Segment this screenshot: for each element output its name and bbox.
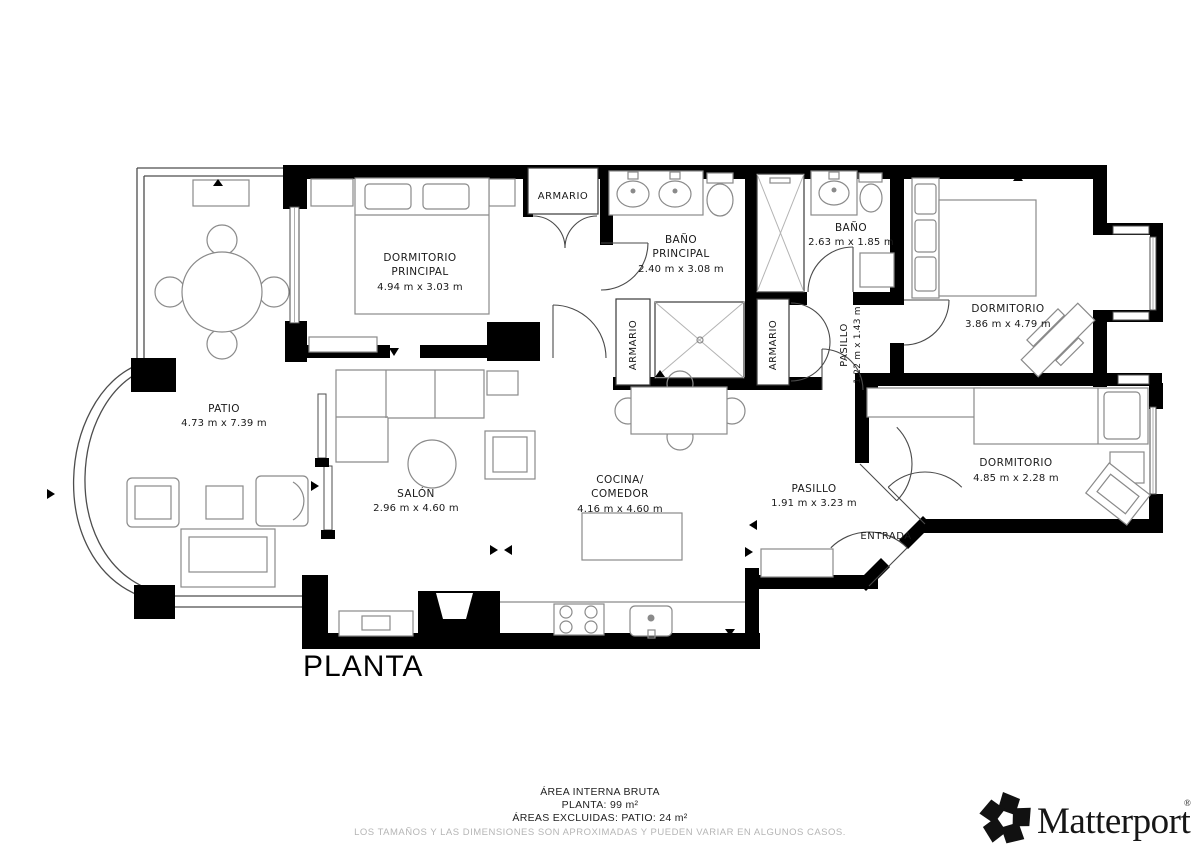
dormitorio-inferior-doors <box>860 427 962 524</box>
principal-bench <box>309 337 377 352</box>
floor-plan: DORMITORIO PRINCIPAL 4.94 m x 3.03 m ARM… <box>0 0 1200 849</box>
patio-label: PATIO <box>208 403 240 415</box>
dormitorio-derecha-dims: 3.86 m x 4.79 m <box>965 319 1051 330</box>
patio-dining-set <box>155 225 289 359</box>
dormitorio-inferior-bed <box>974 388 1148 444</box>
dormitorio-inferior-label: DORMITORIO <box>979 457 1052 469</box>
patio-salon-glass-doors <box>315 394 335 539</box>
bano-principal-label: BAÑO <box>665 233 697 246</box>
salon-sofa <box>336 370 484 462</box>
patio-armchair-1 <box>127 478 179 527</box>
stove-icon <box>554 604 604 635</box>
patio-coffee-table <box>206 486 243 519</box>
salon-label: SALÓN <box>397 487 435 500</box>
pasillo-label: PASILLO <box>792 483 837 495</box>
salon-rug <box>408 440 456 488</box>
bano-principal-dims: 2.40 m x 3.08 m <box>638 264 724 275</box>
armario-superior-label: ARMARIO <box>538 191 589 202</box>
bano-label: BAÑO <box>835 221 867 234</box>
matterport-registered-mark: ® <box>1184 798 1191 808</box>
footer: ÁREA INTERNA BRUTA PLANTA: 99 m² ÁREAS E… <box>354 785 846 838</box>
bano-principal-label-2: PRINCIPAL <box>652 248 709 260</box>
armario-izquierdo-label: ARMARIO <box>628 320 639 371</box>
bano-sink <box>811 171 857 215</box>
principal-nightstand-right <box>489 179 515 206</box>
bano-shower <box>757 174 804 292</box>
armario-derecho-label: ARMARIO <box>768 320 779 371</box>
patio-sofa <box>181 529 275 587</box>
cocina-island <box>582 513 682 560</box>
entrada-label: ENTRADA <box>860 531 911 542</box>
bano-dims: 2.63 m x 1.85 m <box>808 237 894 248</box>
matterport-logo: Matterport ® <box>978 792 1192 849</box>
salon-dims: 2.96 m x 4.60 m <box>373 503 459 514</box>
bano-cabinet <box>860 253 894 287</box>
salon-tv-cabinet <box>339 611 413 636</box>
cocina-dims: 4.16 m x 4.60 m <box>577 504 663 515</box>
furniture-layer <box>127 168 1150 638</box>
bano-principal-toilet <box>707 173 733 216</box>
matterport-pinwheel-icon <box>978 792 1036 849</box>
salon-side-table <box>487 371 518 395</box>
principal-nightstand-left <box>311 179 353 206</box>
dormitorio-principal-label-2: PRINCIPAL <box>391 266 448 278</box>
sink-icon <box>630 606 672 638</box>
pasillo-pequeno-dims: 1.22 m x 1.43 m <box>853 306 863 383</box>
armario-derecho-doors <box>791 303 830 381</box>
matterport-wordmark: Matterport <box>1037 801 1191 842</box>
cocina-label-2: COMEDOR <box>591 488 649 500</box>
salon-armchair <box>485 431 535 479</box>
pasillo-console <box>761 549 833 577</box>
dormitorio-inferior-dims: 4.85 m x 2.28 m <box>973 473 1059 484</box>
principal-bed <box>355 178 489 314</box>
bano-principal-vanity <box>609 171 703 215</box>
bano-door <box>808 247 853 292</box>
pasillo-dims: 1.91 m x 3.23 m <box>771 498 857 509</box>
footer-area-line: ÁREA INTERNA BRUTA <box>540 785 660 798</box>
footer-excluded-line: ÁREAS EXCLUIDAS: PATIO: 24 m² <box>512 811 687 824</box>
cocina-counter <box>500 602 745 638</box>
patio-dims: 4.73 m x 7.39 m <box>181 418 267 429</box>
pasillo-pequeno-label: PASILLO <box>839 323 850 367</box>
footer-planta-line: PLANTA: 99 m² <box>562 799 639 811</box>
dormitorio-derecha-label: DORMITORIO <box>971 303 1044 315</box>
bano-principal-shower <box>655 302 744 378</box>
dormitorio-derecha-door <box>904 300 949 345</box>
armario-superior-doors <box>533 216 597 248</box>
dormitorio-principal-label: DORMITORIO <box>383 252 456 264</box>
patio-bedroom-window <box>290 207 299 323</box>
dormitorio-derecha-bed <box>912 178 1036 298</box>
bay-window-top <box>1113 226 1156 320</box>
patio-armchair-2 <box>256 476 308 526</box>
footer-disclaimer: LOS TAMAÑOS Y LAS DIMENSIONES SON APROXI… <box>354 827 846 838</box>
dormitorio-principal-door <box>553 305 606 358</box>
cocina-label: COCINA/ <box>596 474 643 486</box>
dormitorio-principal-dims: 4.94 m x 3.03 m <box>377 282 463 293</box>
dormitorio-inferior-closet <box>867 388 980 417</box>
page-title: PLANTA <box>303 650 423 683</box>
floor-plan-page: DORMITORIO PRINCIPAL 4.94 m x 3.03 m ARM… <box>0 0 1200 849</box>
bano-toilet <box>859 173 882 212</box>
